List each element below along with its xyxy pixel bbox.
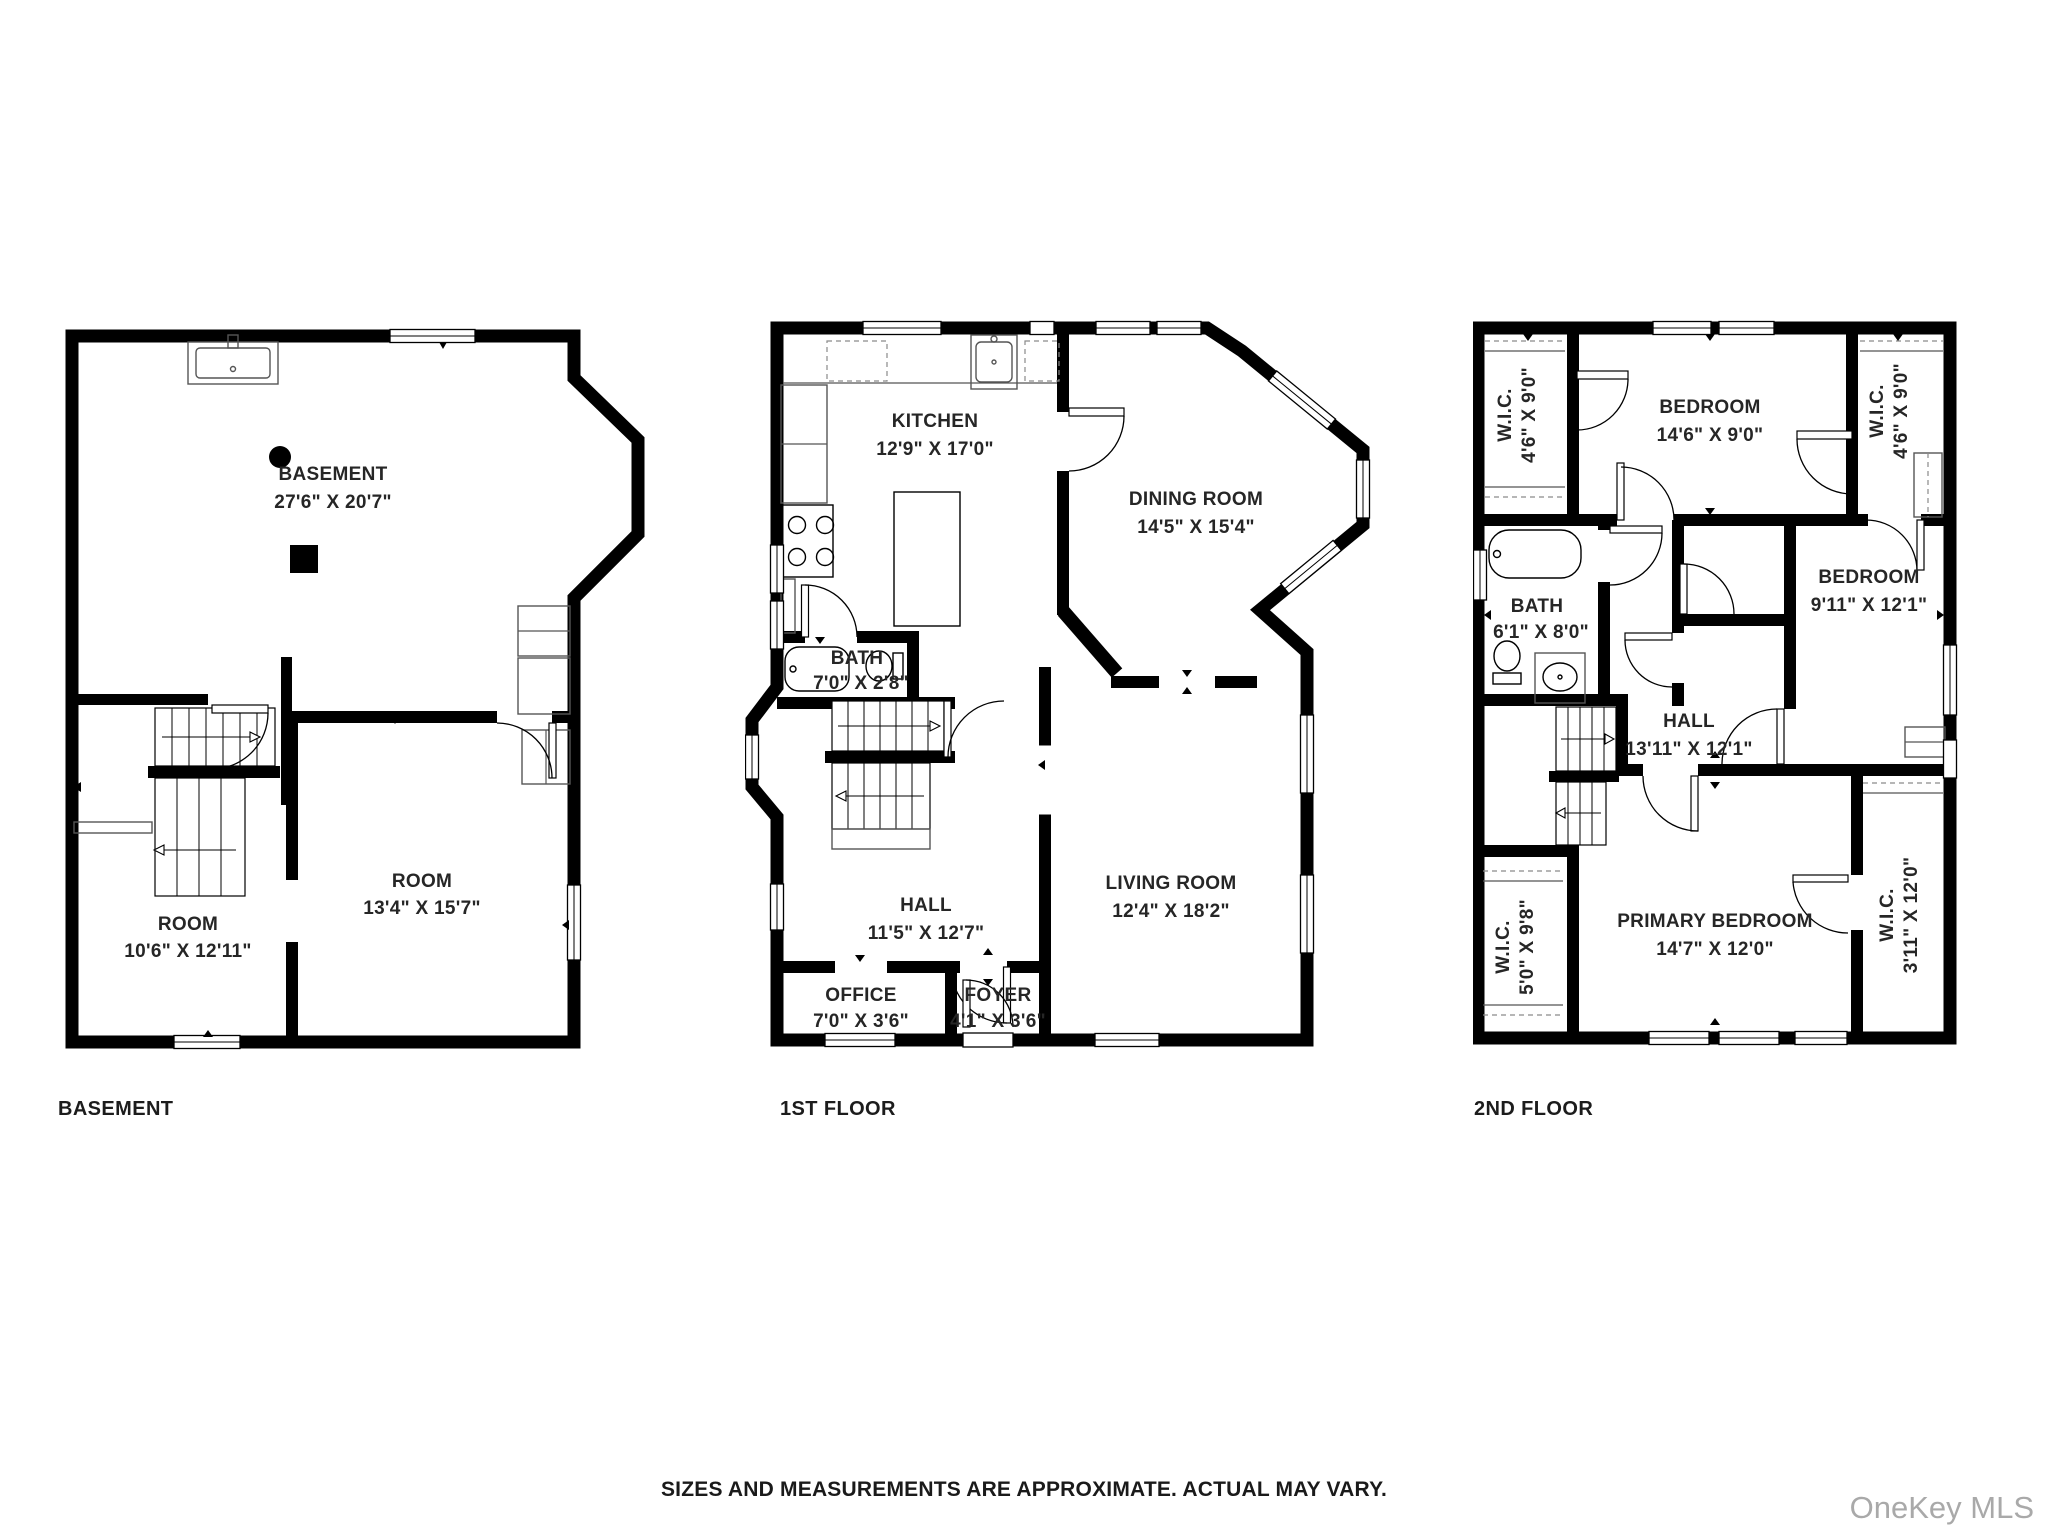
window-icon <box>568 885 581 960</box>
window-icon <box>771 601 784 649</box>
window-icon <box>1719 322 1774 335</box>
window-icon <box>825 1034 895 1047</box>
room-dims: 4'1" X 3'6" <box>950 1011 1046 1032</box>
room-label: W.I.C. <box>1493 920 1514 974</box>
window-icon <box>1030 322 1054 335</box>
window-icon <box>1096 322 1150 335</box>
caption-second-floor: 2ND FLOOR <box>1474 1098 1593 1121</box>
room-dims: 7'0" X 3'6" <box>813 1011 909 1032</box>
room-dims: 5'0" X 9'8" <box>1517 899 1538 995</box>
window-icon <box>771 884 784 930</box>
room-dims: 14'5" X 15'4" <box>1137 517 1255 538</box>
window-icon <box>1649 1032 1709 1045</box>
window-icon <box>1095 1034 1159 1047</box>
room-dims: 12'9" X 17'0" <box>876 439 994 460</box>
support-post-icon <box>290 545 318 573</box>
room-dims: 9'11" X 12'1" <box>1811 595 1928 616</box>
first-floor-stairs <box>832 701 944 849</box>
window-icon <box>1157 322 1201 335</box>
room-label: W.I.C. <box>1877 888 1898 942</box>
caption-basement: BASEMENT <box>58 1098 173 1121</box>
room-label: HALL <box>1663 711 1715 732</box>
room-dims: 12'4" X 18'2" <box>1112 901 1230 922</box>
room-dims: 13'11" X 12'1" <box>1625 739 1752 760</box>
room-label: BATH <box>831 648 884 669</box>
room-label: KITCHEN <box>892 411 979 432</box>
floorplan-page: BASEMENT 27'6" X 20'7" ROOM 10'6" X 12'1… <box>0 0 2048 1536</box>
room-label: FOYER <box>965 985 1032 1006</box>
caption-first-floor: 1ST FLOOR <box>780 1098 896 1121</box>
window-icon <box>1944 740 1957 778</box>
room-label: HALL <box>900 895 952 916</box>
room-dims: 10'6" X 12'11" <box>124 941 251 962</box>
room-label: PRIMARY BEDROOM <box>1617 911 1813 932</box>
window-icon <box>1653 322 1711 335</box>
room-dims: 7'0" X 2'8" <box>813 673 909 694</box>
basement-plan: BASEMENT 27'6" X 20'7" ROOM 10'6" X 12'1… <box>60 320 660 1060</box>
window-icon <box>863 322 941 335</box>
window-icon <box>1301 875 1314 953</box>
room-label: BEDROOM <box>1659 397 1760 418</box>
window-icon <box>771 545 784 593</box>
window-icon <box>1795 1032 1847 1045</box>
bay-window-icon <box>1357 460 1370 518</box>
room-label: DINING ROOM <box>1129 489 1263 510</box>
window-icon <box>1719 1032 1779 1045</box>
room-label: OFFICE <box>825 985 896 1006</box>
window-icon <box>390 330 475 343</box>
room-label: BATH <box>1511 596 1564 617</box>
window-icon <box>1474 550 1487 600</box>
room-label: W.I.C. <box>1867 384 1888 438</box>
room-dims: 4'6" X 9'0" <box>1519 367 1540 463</box>
room-label: LIVING ROOM <box>1105 873 1236 894</box>
room-dims: 13'4" X 15'7" <box>363 898 481 919</box>
first-floor-plan: KITCHEN 12'9" X 17'0" DINING ROOM 14'5" … <box>745 315 1405 1055</box>
room-dims: 11'5" X 12'7" <box>868 923 985 944</box>
second-floor-plan: W.I.C. 4'6" X 9'0" BEDROOM 14'6" X 9'0" … <box>1473 315 1973 1055</box>
window-icon <box>1301 715 1314 793</box>
room-label: BASEMENT <box>278 464 387 485</box>
room-dims: 3'11" X 12'0" <box>1901 857 1922 974</box>
room-label: ROOM <box>158 914 218 935</box>
window-icon <box>174 1036 240 1049</box>
room-label: ROOM <box>392 871 452 892</box>
room-label: BEDROOM <box>1818 567 1919 588</box>
room-label: W.I.C. <box>1495 388 1516 442</box>
room-dims: 14'6" X 9'0" <box>1657 425 1764 446</box>
room-dims: 6'1" X 8'0" <box>1493 622 1589 643</box>
room-dims: 27'6" X 20'7" <box>274 492 392 513</box>
room-dims: 4'6" X 9'0" <box>1891 363 1912 459</box>
room-dims: 14'7" X 12'0" <box>1656 939 1774 960</box>
disclaimer-text: SIZES AND MEASUREMENTS ARE APPROXIMATE. … <box>0 1478 2048 1502</box>
window-icon <box>1944 645 1957 715</box>
bay-window-icon <box>746 735 759 779</box>
basement-outline <box>72 336 638 1042</box>
onekey-mls-watermark: OneKey MLS <box>1850 1490 2034 1526</box>
